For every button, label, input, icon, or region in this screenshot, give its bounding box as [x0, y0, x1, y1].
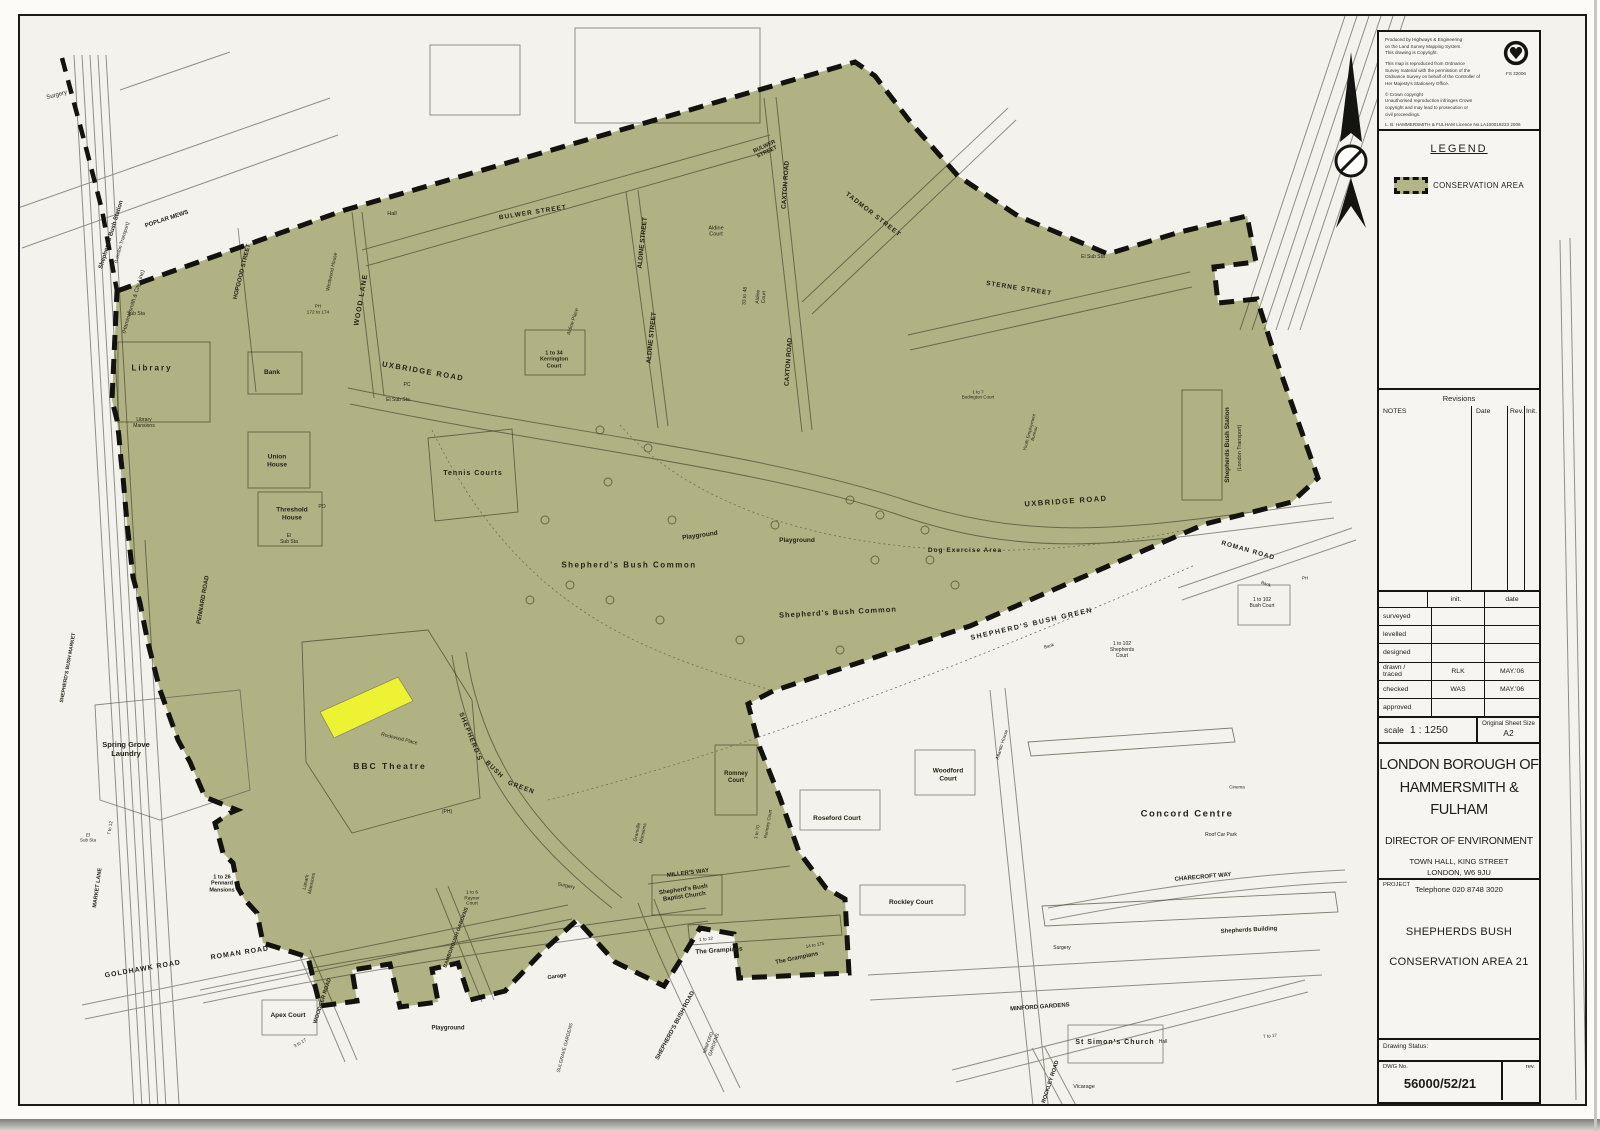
authority-address: TOWN HALL, KING STREET LONDON, W6 9JU: [1379, 856, 1539, 879]
signoff-cell: [1484, 626, 1539, 643]
project-name-line2: CONSERVATION AREA 21: [1379, 956, 1539, 968]
divider: [1507, 406, 1508, 590]
signoff-cell: designed: [1379, 649, 1431, 656]
stamp-paragraph: Produced by Highways & Engineering on th…: [1385, 37, 1485, 57]
signoff-cell: levelled: [1379, 631, 1431, 638]
title-block: FS 32006 Produced by Highways & Engineer…: [1377, 30, 1541, 1104]
signoff-cell: [1431, 608, 1484, 625]
revisions-panel: Revisions NOTES Date Rev. Init.: [1379, 390, 1539, 592]
licence-line: L. B. HAMMERSMITH & FULHAM Licence No.LA…: [1385, 122, 1533, 129]
signoff-row: approved: [1379, 699, 1539, 716]
authority-name: LONDON BOROUGH OF HAMMERSMITH & FULHAM: [1379, 754, 1539, 822]
project-name-line1: SHEPHERDS BUSH: [1379, 926, 1539, 938]
signoff-header-row: init. date: [1379, 592, 1539, 608]
revisions-notes-label: NOTES: [1383, 408, 1406, 415]
drawing-status-label: Drawing Status:: [1383, 1043, 1428, 1050]
signoff-init-header: init.: [1427, 592, 1484, 607]
scale-row: scale 1 : 1250 Original Sheet Size A2: [1379, 718, 1539, 744]
authority-department: DIRECTOR OF ENVIRONMENT: [1379, 835, 1539, 847]
signoff-row: drawn / tracedRLKMAY.'06: [1379, 663, 1539, 681]
signoff-row: levelled: [1379, 626, 1539, 644]
signoff-cell: surveyed: [1379, 613, 1431, 620]
revisions-rev-header: Rev.: [1510, 408, 1523, 415]
project-label: PROJECT: [1379, 880, 1539, 888]
signoff-cell: [1431, 644, 1484, 661]
signoff-cell: approved: [1379, 704, 1431, 711]
signoff-cell: MAY.'06: [1484, 681, 1539, 698]
signoff-row: checkedWASMAY.'06: [1379, 681, 1539, 699]
divider: [1524, 406, 1525, 590]
signoff-cell: drawn / traced: [1379, 664, 1431, 679]
dwg-label: DWG No.: [1383, 1064, 1408, 1070]
scale-value: 1 : 1250: [1410, 724, 1448, 736]
signoff-cell: [1431, 626, 1484, 643]
signoff-cell: [1484, 608, 1539, 625]
bsi-kitemark-icon: FS 32006: [1503, 40, 1529, 77]
spacer: [1379, 592, 1427, 607]
legend-item-label: CONSERVATION AREA: [1433, 181, 1524, 190]
sheet-size-label: Original Sheet Size: [1478, 720, 1539, 728]
bsi-code: FS 32006: [1503, 71, 1529, 78]
signoff-row: designed: [1379, 644, 1539, 662]
map-canvas: [0, 0, 1600, 1131]
signoff-table: init. date surveyedlevelleddesigneddrawn…: [1379, 592, 1539, 718]
dwg-number: 56000/52/21: [1379, 1076, 1501, 1091]
signoff-cell: WAS: [1431, 681, 1484, 698]
project-panel: PROJECT SHEPHERDS BUSH CONSERVATION AREA…: [1379, 880, 1539, 1040]
signoff-cell: checked: [1379, 686, 1431, 693]
copyright-stamp: FS 32006 Produced by Highways & Engineer…: [1379, 32, 1539, 131]
divider: [1471, 406, 1472, 590]
authority-panel: LONDON BOROUGH OF HAMMERSMITH & FULHAM D…: [1379, 744, 1539, 880]
drawing-status-row: Drawing Status:: [1379, 1040, 1539, 1062]
signoff-cell: [1484, 644, 1539, 661]
legend-title: LEGEND: [1379, 143, 1539, 155]
signoff-cell: [1484, 699, 1539, 716]
signoff-cell: RLK: [1431, 663, 1484, 680]
stamp-paragraph: This map is reproduced from Ordnance Sur…: [1385, 61, 1489, 88]
revisions-title: Revisions: [1379, 390, 1539, 403]
legend-panel: LEGEND CONSERVATION AREA: [1379, 131, 1539, 390]
dwg-rev-label: rev.: [1526, 1064, 1535, 1070]
scan-edge-shadow: [1594, 0, 1597, 1131]
dwg-row: DWG No. 56000/52/21 rev.: [1379, 1062, 1539, 1100]
revisions-date-header: Date: [1476, 408, 1490, 415]
scan-edge-shadow: [0, 1119, 1600, 1131]
signoff-cell: [1431, 699, 1484, 716]
sheet-size-value: A2: [1478, 728, 1539, 739]
revisions-init-header: Init.: [1526, 408, 1537, 415]
signoff-row: surveyed: [1379, 608, 1539, 626]
scale-label: scale: [1384, 725, 1404, 735]
scanned-map-page: { "sheet": { "stamp": { "para1": "Produc…: [0, 0, 1600, 1131]
signoff-date-header: date: [1484, 592, 1539, 607]
stamp-paragraph: © Crown copyright Unauthorised reproduct…: [1385, 92, 1533, 119]
signoff-cell: MAY.'06: [1484, 663, 1539, 680]
conservation-area-swatch: [1394, 177, 1428, 194]
